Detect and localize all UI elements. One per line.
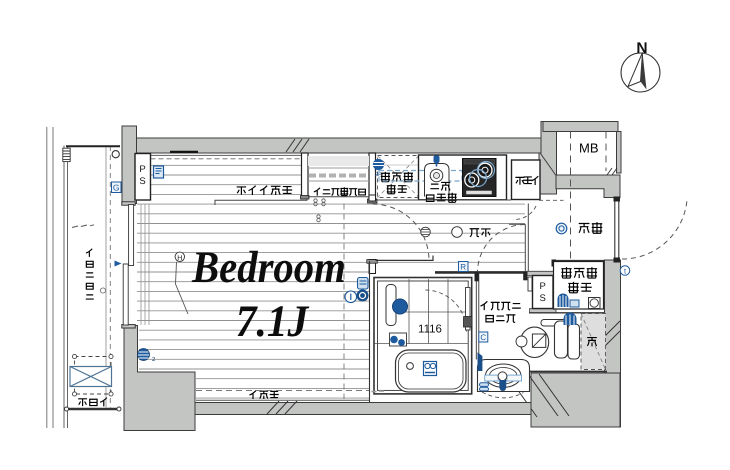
svg-text:1116: 1116 xyxy=(418,324,442,336)
svg-text:G: G xyxy=(113,182,120,192)
svg-text:S: S xyxy=(139,176,145,187)
svg-text:H: H xyxy=(177,255,182,262)
svg-text:P: P xyxy=(540,281,546,292)
svg-text:MB: MB xyxy=(579,141,599,156)
svg-text:R: R xyxy=(460,263,466,272)
svg-text:P: P xyxy=(139,164,145,175)
svg-text:Bedroom: Bedroom xyxy=(191,242,346,292)
svg-text:7.1J: 7.1J xyxy=(236,296,310,346)
svg-text:S: S xyxy=(540,293,546,304)
svg-text:C: C xyxy=(480,333,486,342)
svg-text:N: N xyxy=(636,40,647,57)
